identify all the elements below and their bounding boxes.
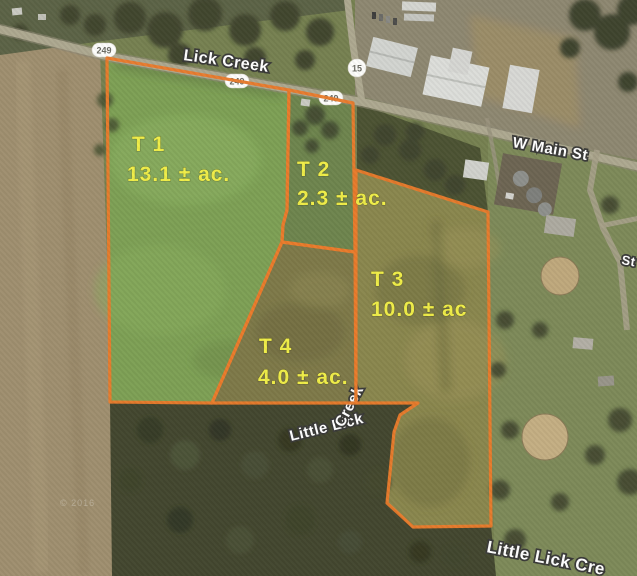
tract-t1-acreage: 13.1 ± ac. <box>127 163 230 186</box>
route-shield-249-a: 249 <box>92 43 116 57</box>
tract-t2-acreage: 2.3 ± ac. <box>297 187 388 210</box>
tract-t3-name: T 3 <box>371 268 404 291</box>
tract-t3-acreage: 10.0 ± ac <box>371 298 467 321</box>
aerial-background <box>0 0 637 576</box>
road-label-st-partial: St <box>620 252 637 269</box>
route-shield-label: 249 <box>96 46 111 56</box>
tract-t2-name: T 2 <box>297 158 330 181</box>
route-shield-15: 15 <box>348 59 366 77</box>
tract-t4-acreage: 4.0 ± ac. <box>258 366 349 389</box>
tract-t4-name: T 4 <box>259 335 292 358</box>
aerial-map: 249 249 249 15 Lick Creek W Main St St L… <box>0 0 637 576</box>
map-attribution: © 2016 <box>60 498 95 508</box>
tract-t1-name: T 1 <box>132 133 165 156</box>
map-canvas: 249 249 249 15 Lick Creek W Main St St L… <box>0 0 637 576</box>
route-shield-label: 15 <box>352 64 362 74</box>
